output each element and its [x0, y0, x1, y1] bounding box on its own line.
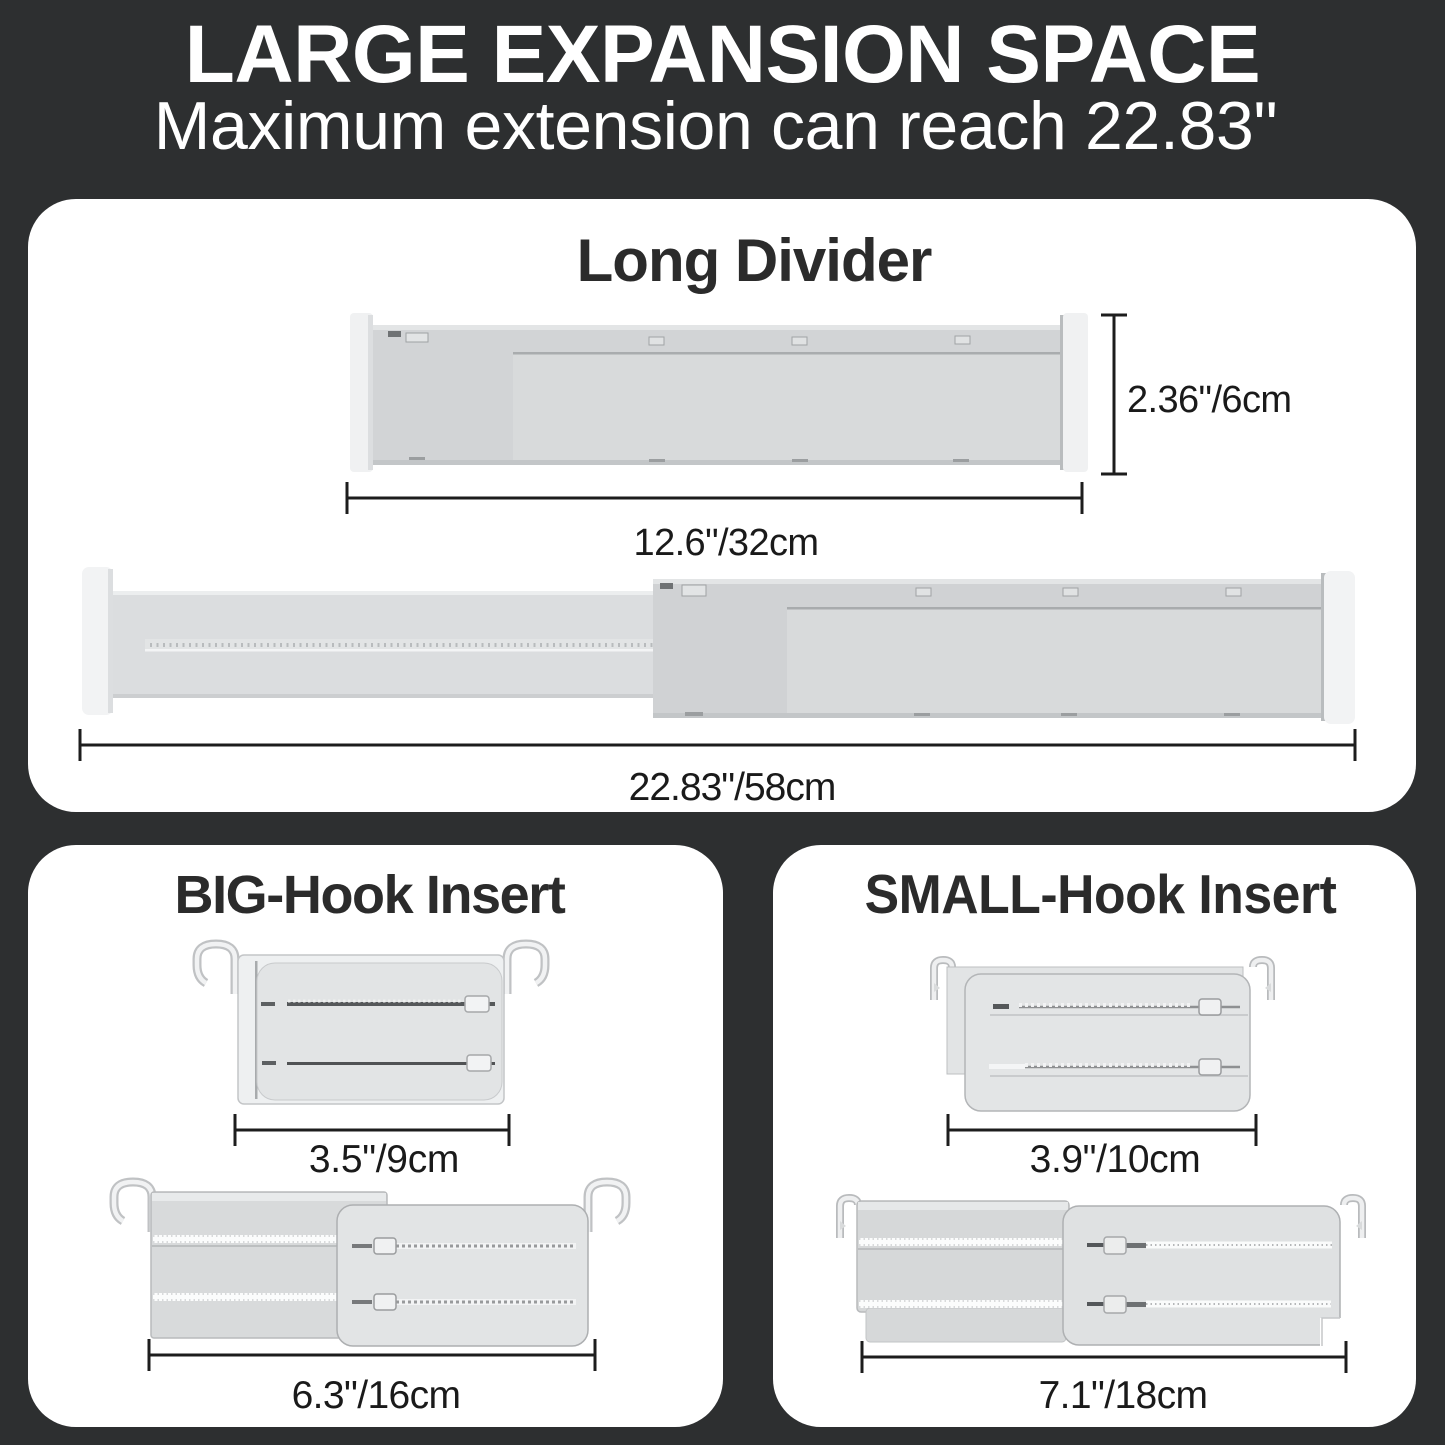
- svg-text:22.83"/58cm: 22.83"/58cm: [629, 766, 836, 809]
- svg-text:7.1"/18cm: 7.1"/18cm: [1039, 1374, 1208, 1417]
- svg-text:3.9"/10cm: 3.9"/10cm: [1030, 1138, 1201, 1181]
- svg-text:3.5"/9cm: 3.5"/9cm: [309, 1138, 459, 1181]
- svg-text:12.6"/32cm: 12.6"/32cm: [634, 522, 819, 564]
- svg-text:2.36"/6cm: 2.36"/6cm: [1127, 379, 1291, 421]
- svg-text:6.3"/16cm: 6.3"/16cm: [292, 1374, 461, 1417]
